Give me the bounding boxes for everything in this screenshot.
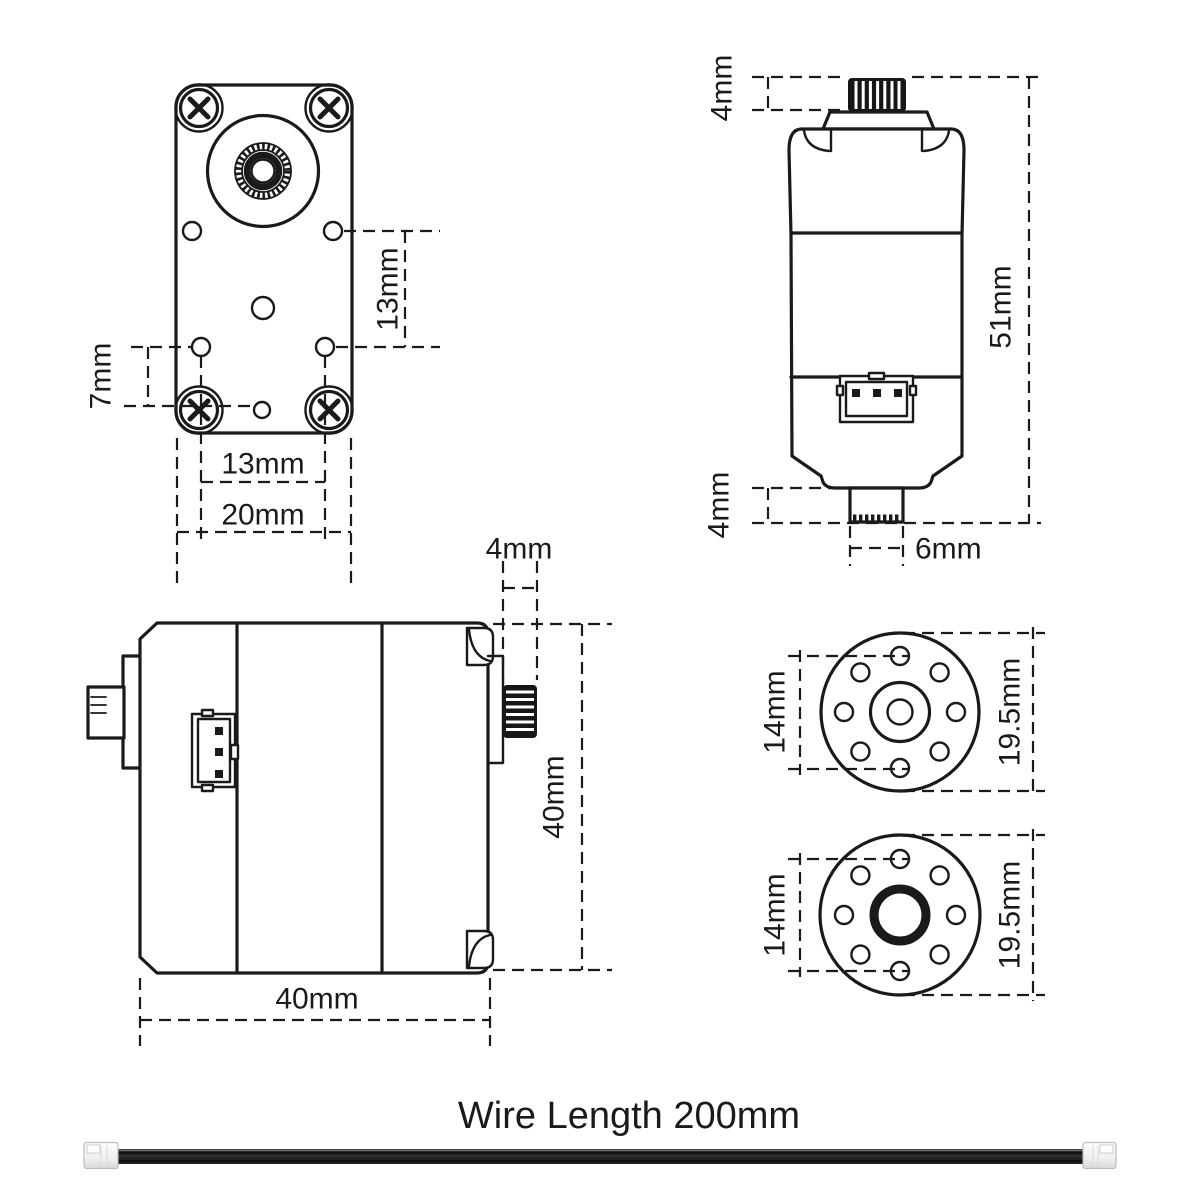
diagram-canvas: 13mm 7mm 13mm 20mm: [0, 0, 1200, 1200]
dim-side-4mm: 4mm: [486, 533, 553, 681]
dim-label-top-4mm-boss: 4mm: [703, 472, 736, 539]
dim-top-6mm: 6mm: [850, 526, 982, 566]
dim-label-front-13mm-bottom: 13mm: [221, 448, 304, 481]
connector-port: [192, 710, 238, 791]
dim-label-side-40mm-height: 40mm: [538, 755, 571, 838]
servo-horn-front-view: 14mm 19.5mm: [759, 627, 1046, 797]
dim-label-front-7mm: 7mm: [85, 343, 118, 410]
dim-label-top-4mm-shaft: 4mm: [706, 55, 739, 122]
mounting-screw: [181, 392, 218, 429]
servo-wire: [112, 1149, 1090, 1164]
output-flange: [488, 656, 503, 763]
dim-label-front-20mm: 20mm: [221, 499, 304, 532]
dim-label-side-40mm-length: 40mm: [275, 983, 358, 1016]
mounting-screw: [181, 90, 218, 127]
servo-front-view: 13mm 7mm 13mm 20mm: [85, 85, 441, 584]
servo-top-view: 4mm 51mm 4mm 6mm: [703, 55, 1042, 566]
servo-horn-back-view: 14mm 19.5mm: [759, 829, 1046, 1001]
top-cap: [823, 112, 934, 129]
dim-label-front-13mm-side: 13mm: [372, 247, 405, 330]
output-shaft-knurled-side: [503, 685, 537, 738]
wire-connector-left: [84, 1143, 118, 1169]
dim-label-horn-front-19.5mm: 19.5mm: [994, 658, 1027, 766]
wire-connector-right: [1083, 1143, 1116, 1169]
servo-side-body: [140, 623, 488, 973]
dim-label-horn-back-14mm: 14mm: [759, 873, 792, 956]
dim-top-51mm: 51mm: [985, 77, 1030, 523]
servo-top-body: [789, 129, 964, 488]
dim-label-horn-front-14mm: 14mm: [759, 670, 792, 753]
wire-length-label: Wire Length 200mm: [458, 1095, 800, 1137]
mounting-screw: [311, 90, 348, 127]
dim-label-top-51mm: 51mm: [985, 265, 1018, 348]
dim-label-side-4mm: 4mm: [486, 533, 553, 566]
connector-port: [837, 373, 916, 422]
mounting-screw: [311, 392, 348, 429]
servo-side-view: 4mm 40mm 40mm: [88, 533, 612, 1047]
wire-plug: [88, 656, 141, 768]
dim-side-40mm-height: 40mm: [493, 624, 612, 970]
output-shaft-front: [208, 116, 319, 227]
servo-dimension-diagram: 13mm 7mm 13mm 20mm: [0, 0, 1200, 1200]
dim-side-40mm-length: 40mm: [140, 978, 490, 1046]
dim-label-horn-back-19.5mm: 19.5mm: [994, 861, 1027, 969]
output-shaft-knurled: [848, 78, 906, 112]
dim-label-top-6mm: 6mm: [915, 533, 982, 566]
bottom-boss: [850, 488, 903, 522]
wire-section: Wire Length 200mm: [84, 1095, 1116, 1169]
